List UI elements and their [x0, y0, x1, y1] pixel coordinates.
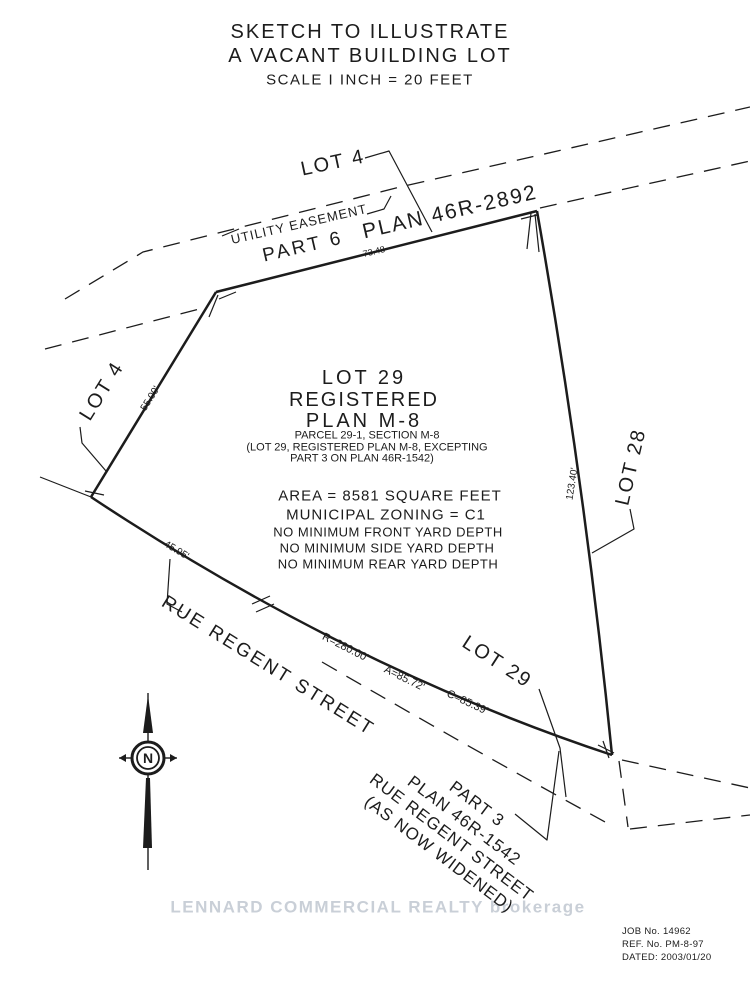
north-arrow-tail-icon [143, 778, 152, 848]
reference-number: REF. No. PM-8-97 [622, 938, 711, 951]
parcel-area-note: AREA = 8581 SQUARE FEET [278, 489, 502, 504]
survey-sketch-page: LENNARD COMMERCIAL REALTY brokerage [0, 0, 750, 982]
parcel-subtitle-1: PARCEL 29-1, SECTION M-8 [295, 431, 440, 442]
dated: DATED: 2003/01/20 [622, 951, 711, 964]
parcel-name-registered: REGISTERED [289, 390, 439, 410]
job-number: JOB No. 14962 [622, 925, 711, 938]
north-arrow [119, 693, 177, 870]
parcel-subtitle-3: PART 3 ON PLAN 46R-1542) [290, 454, 434, 465]
sketch-scale-note: SCALE I INCH = 20 FEET [266, 73, 474, 88]
title-block: JOB No. 14962 REF. No. PM-8-97 DATED: 20… [622, 925, 711, 964]
north-arrowhead-icon [143, 695, 153, 733]
sketch-title-line1: SKETCH TO ILLUSTRATE [231, 22, 510, 42]
north-letter: N [143, 751, 153, 765]
parcel-yard-note-front: NO MINIMUM FRONT YARD DEPTH [273, 526, 502, 539]
parcel-name-lot29: LOT 29 [322, 368, 406, 388]
parcel-yard-note-rear: NO MINIMUM REAR YARD DEPTH [278, 558, 499, 571]
sketch-title-line2: A VACANT BUILDING LOT [228, 46, 512, 66]
parcel-name-plan-m8: PLAN M-8 [306, 411, 422, 431]
parcel-zoning-note: MUNICIPAL ZONING = C1 [286, 508, 486, 523]
parcel-yard-note-side: NO MINIMUM SIDE YARD DEPTH [280, 542, 495, 555]
